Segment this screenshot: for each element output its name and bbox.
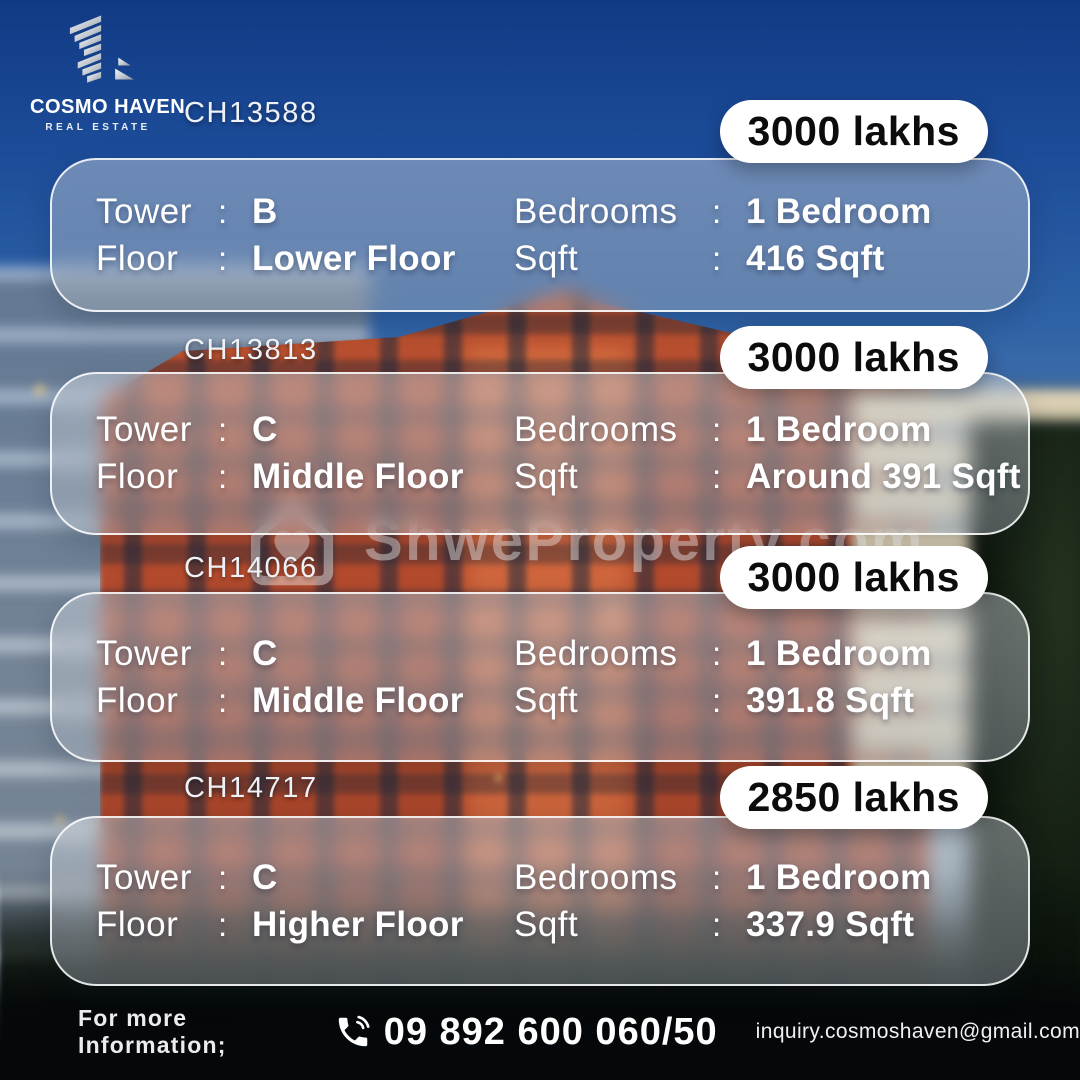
listing-code: CH14066: [184, 552, 318, 585]
bedrooms-value: 1 Bedroom: [746, 634, 932, 674]
floor-label: Floor: [96, 239, 218, 279]
card-right-column: Bedrooms : 1 Bedroom Sqft : 337.9 Sqft: [514, 851, 984, 952]
colon: :: [712, 682, 746, 720]
bedrooms-label: Bedrooms: [514, 192, 712, 232]
floor-value: Middle Floor: [252, 681, 464, 721]
floor-value: Higher Floor: [252, 905, 464, 945]
tower-value: C: [252, 410, 278, 450]
brand-tagline: REAL ESTATE: [30, 122, 166, 133]
listing-code: CH13588: [184, 97, 318, 130]
floor-label: Floor: [96, 905, 218, 945]
floor-value: Middle Floor: [252, 457, 464, 497]
flyer-canvas: COSMO HAVEN REAL ESTATE ShweProperty.com…: [0, 0, 1080, 1080]
colon: :: [218, 682, 252, 720]
bedrooms-row: Bedrooms : 1 Bedroom: [514, 410, 1021, 450]
tower-row: Tower : C: [96, 410, 514, 450]
phone-icon: [334, 1013, 372, 1051]
bedrooms-row: Bedrooms : 1 Bedroom: [514, 634, 984, 674]
card-right-column: Bedrooms : 1 Bedroom Sqft : Around 391 S…: [514, 403, 1021, 504]
listing-card: Tower : C Floor : Higher Floor Bedrooms …: [50, 816, 1030, 986]
floor-row: Floor : Middle Floor: [96, 681, 514, 721]
brand-name: COSMO HAVEN: [30, 96, 166, 119]
card-left-column: Tower : C Floor : Higher Floor: [96, 851, 514, 952]
sqft-value: 391.8 Sqft: [746, 681, 914, 721]
price-badge: 3000 lakhs: [720, 326, 988, 389]
footer-phone: 09 892 600 060/50: [334, 1011, 718, 1054]
bedrooms-value: 1 Bedroom: [746, 858, 932, 898]
floor-value: Lower Floor: [252, 239, 456, 279]
colon: :: [712, 635, 746, 673]
tower-label: Tower: [96, 858, 218, 898]
sqft-row: Sqft : 337.9 Sqft: [514, 905, 984, 945]
footer-bar: For more Information; 09 892 600 060/50 …: [0, 984, 1080, 1080]
listing-code: CH13813: [184, 334, 318, 367]
sqft-label: Sqft: [514, 905, 712, 945]
tower-label: Tower: [96, 410, 218, 450]
tower-value: C: [252, 858, 278, 898]
colon: :: [712, 411, 746, 449]
colon: :: [218, 411, 252, 449]
listing-card: Tower : C Floor : Middle Floor Bedrooms …: [50, 592, 1030, 762]
price-badge: 2850 lakhs: [720, 766, 988, 829]
building-stripes-icon: [50, 14, 146, 92]
sqft-row: Sqft : 391.8 Sqft: [514, 681, 984, 721]
price-badge: 3000 lakhs: [720, 100, 988, 163]
bedrooms-row: Bedrooms : 1 Bedroom: [514, 192, 984, 232]
sqft-row: Sqft : 416 Sqft: [514, 239, 984, 279]
colon: :: [712, 458, 746, 496]
colon: :: [712, 859, 746, 897]
floor-row: Floor : Middle Floor: [96, 457, 514, 497]
bedrooms-value: 1 Bedroom: [746, 410, 932, 450]
sqft-label: Sqft: [514, 681, 712, 721]
card-left-column: Tower : C Floor : Middle Floor: [96, 403, 514, 504]
sqft-label: Sqft: [514, 239, 712, 279]
tower-label: Tower: [96, 192, 218, 232]
footer-phone-number: 09 892 600 060/50: [384, 1011, 718, 1054]
listing-card: Tower : B Floor : Lower Floor Bedrooms :…: [50, 158, 1030, 312]
colon: :: [218, 906, 252, 944]
tower-row: Tower : C: [96, 634, 514, 674]
listing-code: CH14717: [184, 772, 318, 805]
colon: :: [218, 240, 252, 278]
colon: :: [712, 906, 746, 944]
sqft-value: Around 391 Sqft: [746, 457, 1021, 497]
colon: :: [218, 193, 252, 231]
tower-value: B: [252, 192, 278, 232]
card-right-column: Bedrooms : 1 Bedroom Sqft : 391.8 Sqft: [514, 627, 984, 728]
bedrooms-label: Bedrooms: [514, 858, 712, 898]
floor-row: Floor : Lower Floor: [96, 239, 514, 279]
card-left-column: Tower : B Floor : Lower Floor: [96, 185, 514, 286]
colon: :: [218, 859, 252, 897]
tower-row: Tower : C: [96, 858, 514, 898]
bedrooms-label: Bedrooms: [514, 410, 712, 450]
colon: :: [218, 635, 252, 673]
floor-label: Floor: [96, 681, 218, 721]
sqft-row: Sqft : Around 391 Sqft: [514, 457, 1021, 497]
tower-value: C: [252, 634, 278, 674]
bedrooms-row: Bedrooms : 1 Bedroom: [514, 858, 984, 898]
listing-card: Tower : C Floor : Middle Floor Bedrooms …: [50, 372, 1030, 535]
tower-row: Tower : B: [96, 192, 514, 232]
tower-label: Tower: [96, 634, 218, 674]
price-badge: 3000 lakhs: [720, 546, 988, 609]
bedrooms-label: Bedrooms: [514, 634, 712, 674]
sqft-value: 416 Sqft: [746, 239, 885, 279]
footer-email: inquiry.cosmoshaven@gmail.com: [756, 1020, 1080, 1044]
brand-logo: COSMO HAVEN REAL ESTATE: [30, 14, 166, 133]
colon: :: [712, 240, 746, 278]
colon: :: [712, 193, 746, 231]
colon: :: [218, 458, 252, 496]
bedrooms-value: 1 Bedroom: [746, 192, 932, 232]
footer-info-label: For more Information;: [78, 1005, 268, 1059]
sqft-value: 337.9 Sqft: [746, 905, 914, 945]
sqft-label: Sqft: [514, 457, 712, 497]
floor-row: Floor : Higher Floor: [96, 905, 514, 945]
card-right-column: Bedrooms : 1 Bedroom Sqft : 416 Sqft: [514, 185, 984, 286]
floor-label: Floor: [96, 457, 218, 497]
card-left-column: Tower : C Floor : Middle Floor: [96, 627, 514, 728]
